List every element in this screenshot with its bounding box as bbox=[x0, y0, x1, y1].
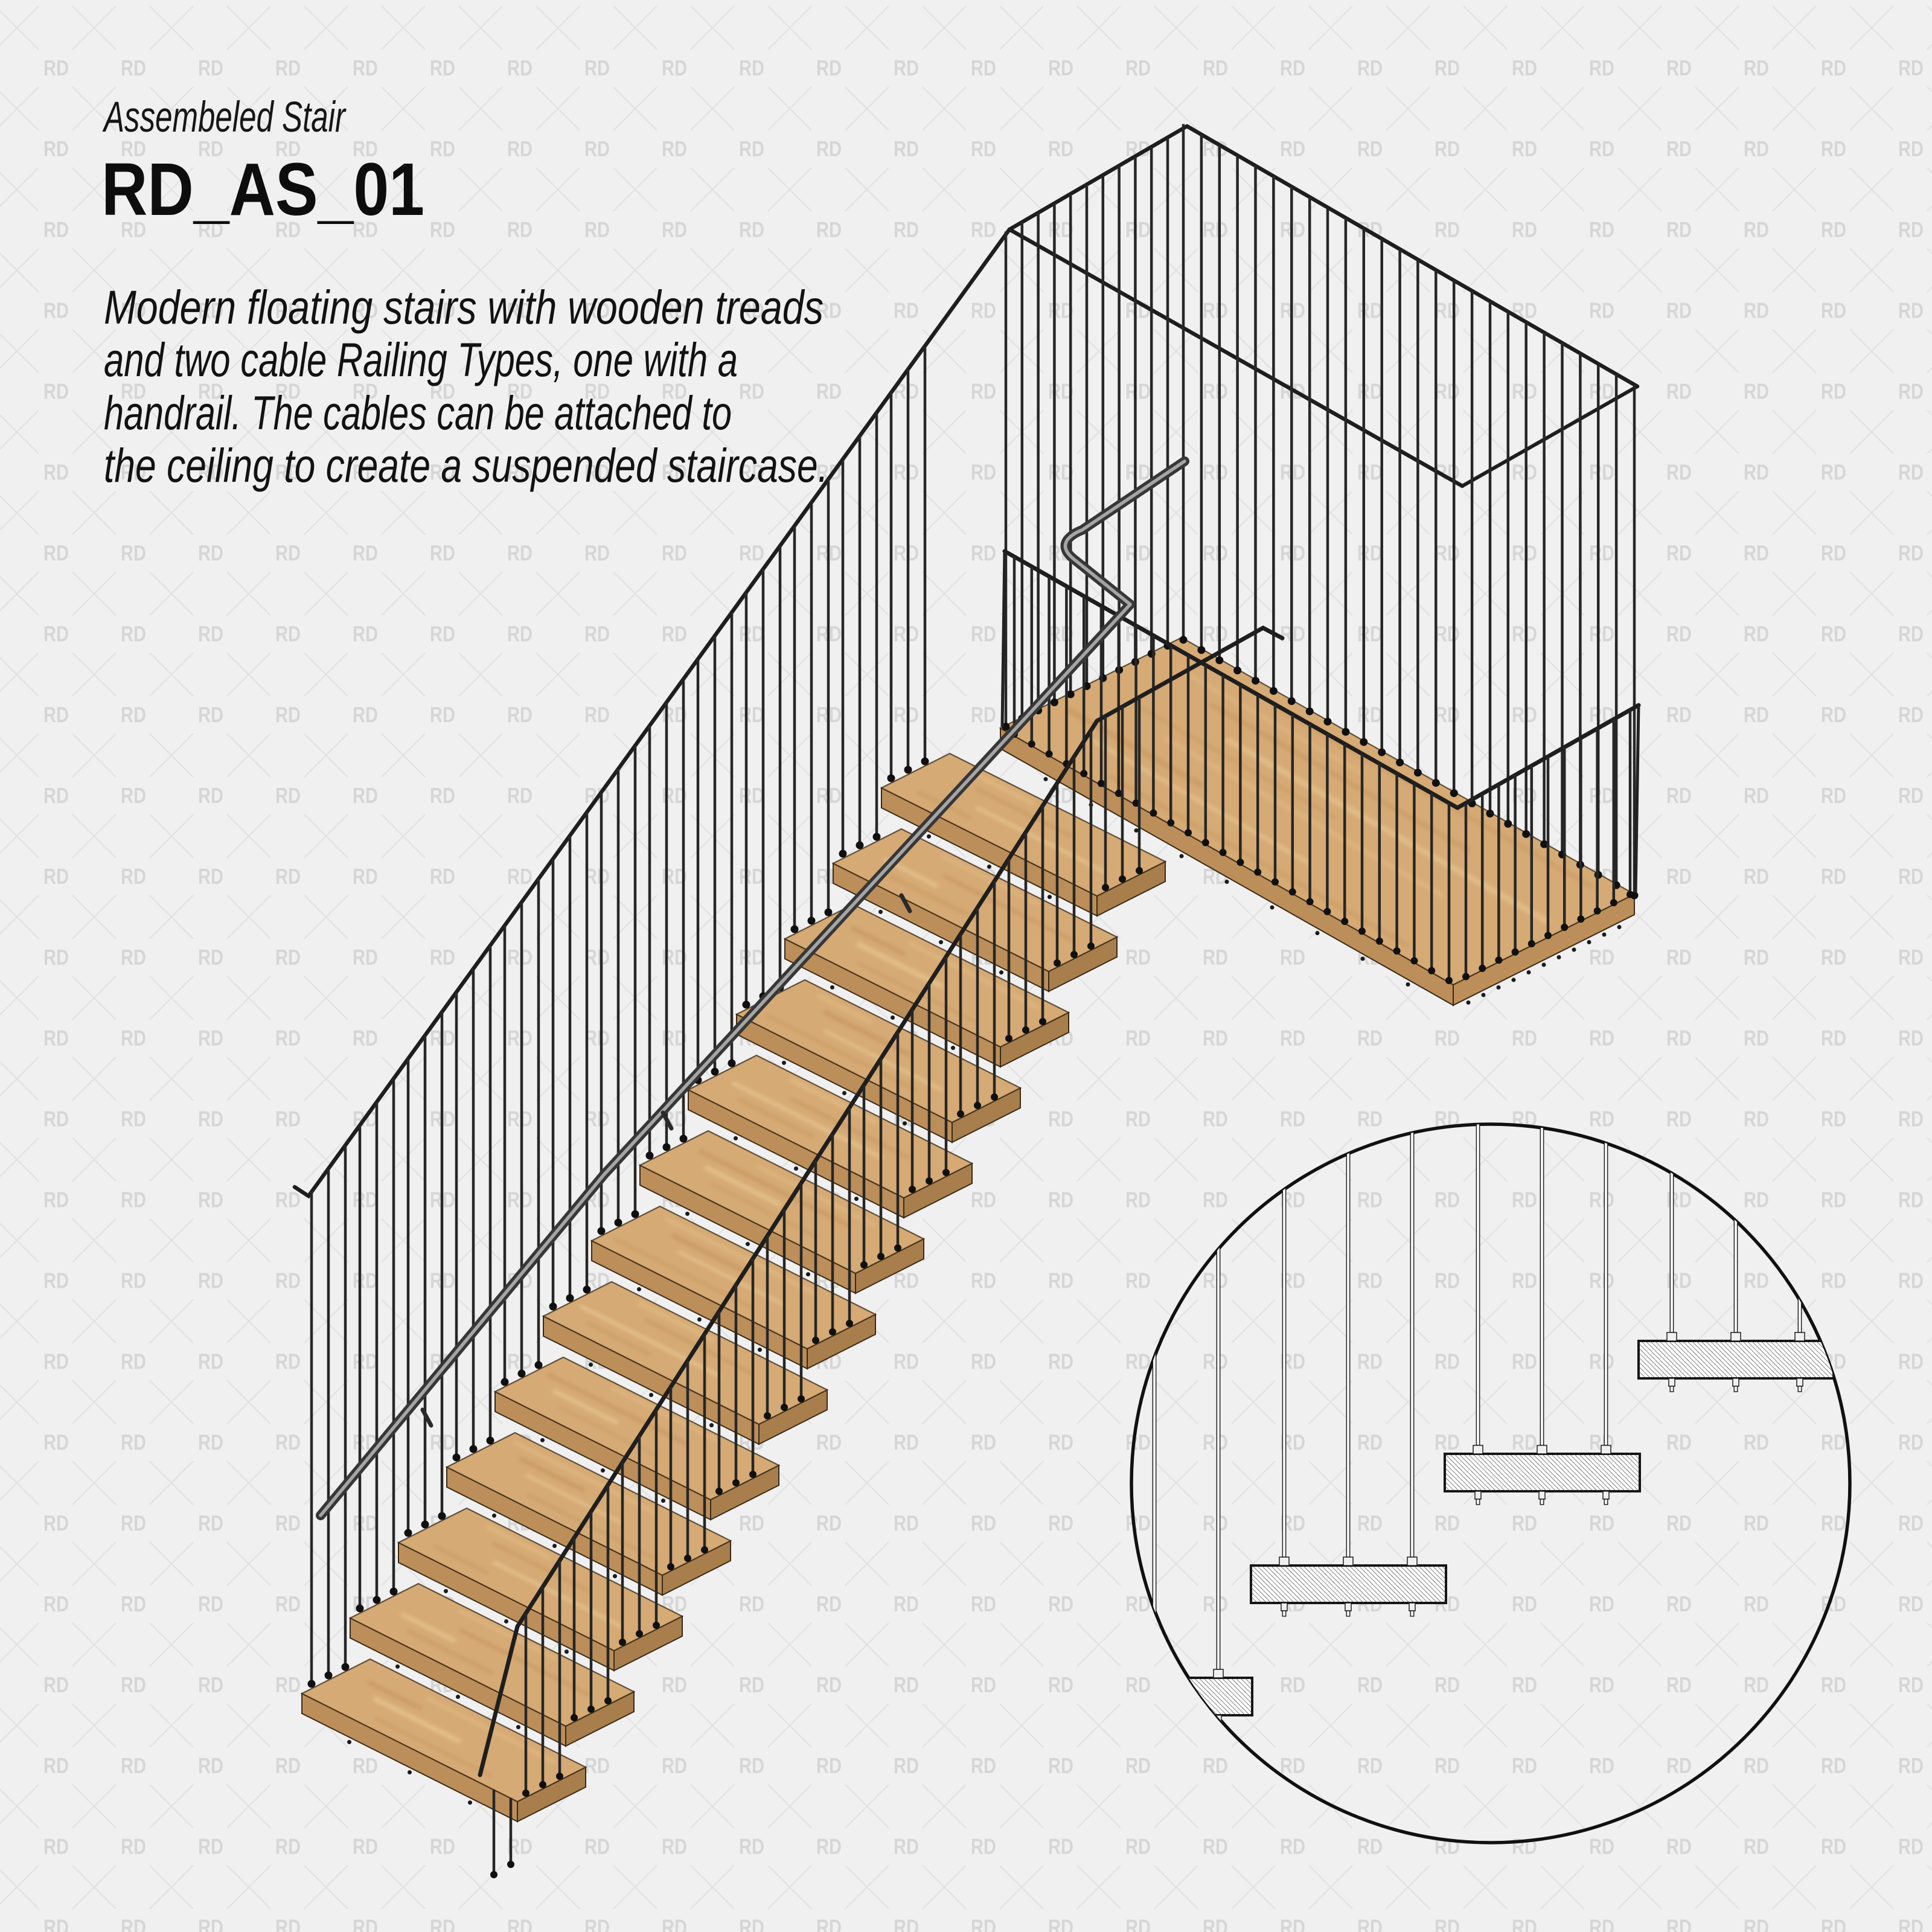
svg-text:handrail. The cables can be at: handrail. The cables can be attached to bbox=[104, 386, 732, 440]
svg-text:Modern floating stairs with wo: Modern floating stairs with wooden tread… bbox=[104, 280, 824, 334]
svg-text:and two cable Railing Types, o: and two cable Railing Types, one with a bbox=[104, 333, 738, 386]
svg-text:the ceiling to create a suspen: the ceiling to create a suspended stairc… bbox=[104, 438, 828, 492]
svg-text:Assembeled Stair: Assembeled Stair bbox=[102, 94, 347, 141]
svg-text:RD_AS_01: RD_AS_01 bbox=[101, 149, 424, 231]
